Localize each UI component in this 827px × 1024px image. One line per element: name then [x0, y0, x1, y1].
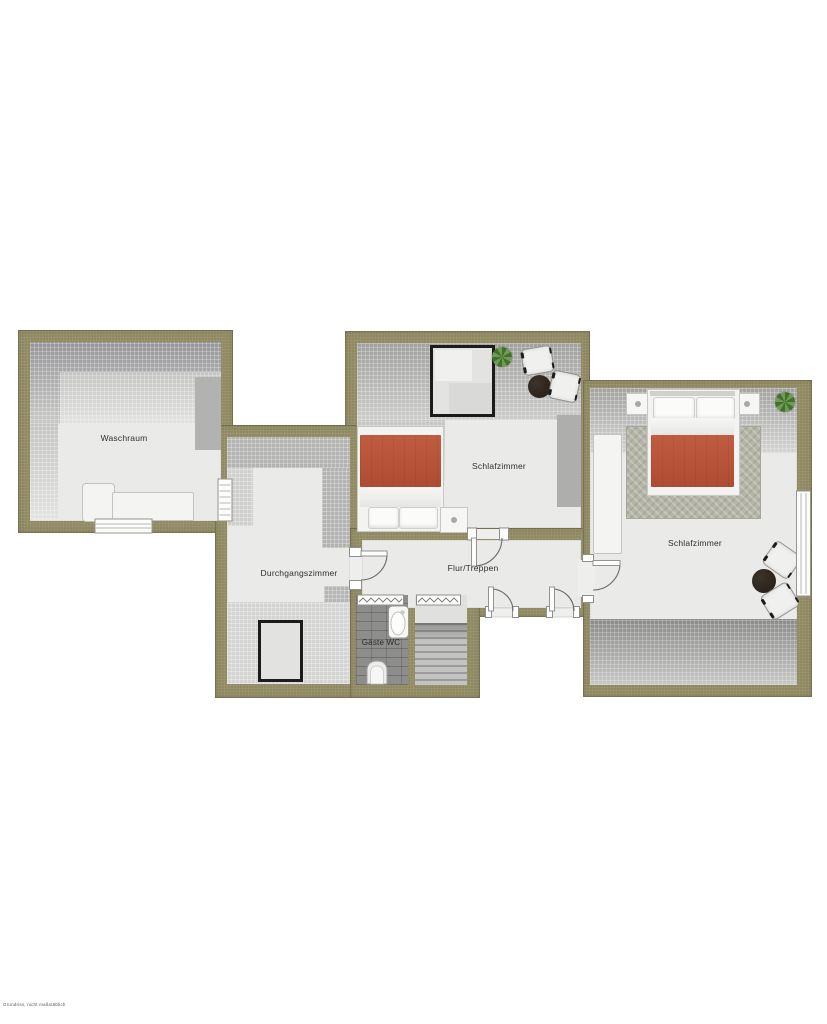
radiator — [417, 595, 461, 605]
radiator — [358, 595, 404, 605]
window — [95, 519, 152, 533]
door — [468, 528, 509, 566]
room-label-schlafzimmer-rechts: Schlafzimmer — [668, 539, 722, 548]
door — [350, 548, 388, 590]
watermark-text: Grundriss, nicht maßstäblich — [3, 1003, 66, 1008]
floor-plan: Waschraum Schlafzimmer Durchgangszimmer … — [0, 0, 827, 1024]
window — [218, 479, 232, 521]
toilet — [367, 661, 387, 684]
door — [486, 587, 519, 618]
room-label-waschraum: Waschraum — [101, 434, 148, 443]
window — [797, 491, 811, 596]
room-label-durchgangszimmer: Durchgangszimmer — [261, 569, 338, 578]
room-label-schlafzimmer-mitte: Schlafzimmer — [472, 462, 526, 471]
bathtub — [389, 606, 409, 638]
door — [578, 555, 620, 603]
room-label-gaeste-wc: Gäste WC — [362, 639, 401, 647]
room-label-flur: Flur/Treppen — [448, 564, 499, 573]
symbols-overlay — [0, 0, 827, 1024]
door — [547, 587, 580, 618]
